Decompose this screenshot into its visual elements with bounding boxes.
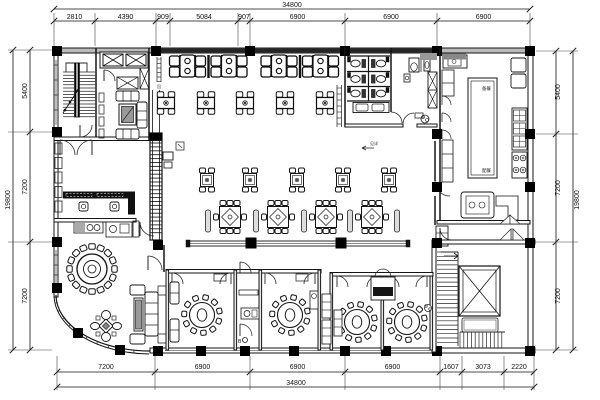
svg-text:2810: 2810 <box>67 14 83 21</box>
svg-text:5084: 5084 <box>196 14 212 21</box>
svg-text:7200: 7200 <box>555 288 562 304</box>
svg-text:7200: 7200 <box>98 364 114 371</box>
svg-text:6900: 6900 <box>290 364 306 371</box>
svg-text:3073: 3073 <box>475 364 491 371</box>
svg-text:备餐: 备餐 <box>482 85 491 92</box>
svg-text:2220: 2220 <box>511 364 527 371</box>
svg-text:见详: 见详 <box>370 140 378 146</box>
svg-text:4390: 4390 <box>118 14 134 21</box>
svg-text:6900: 6900 <box>385 364 401 371</box>
svg-text:1607: 1607 <box>443 364 459 371</box>
svg-text:34800: 34800 <box>282 2 302 9</box>
svg-text:配餐: 配餐 <box>482 167 491 174</box>
svg-text:6900: 6900 <box>383 14 399 21</box>
svg-text:7200: 7200 <box>22 179 29 195</box>
svg-text:回: 回 <box>157 84 161 89</box>
svg-text:909: 909 <box>157 14 169 21</box>
svg-text:19800: 19800 <box>574 190 581 210</box>
svg-text:6900: 6900 <box>290 14 306 21</box>
svg-text:19800: 19800 <box>5 190 12 210</box>
svg-text:5400: 5400 <box>22 83 29 99</box>
svg-text:6900: 6900 <box>476 14 492 21</box>
svg-text:907: 907 <box>238 14 250 21</box>
svg-text:7200: 7200 <box>555 180 562 196</box>
svg-text:6900: 6900 <box>195 364 211 371</box>
svg-text:34800: 34800 <box>286 380 306 387</box>
svg-text:7200: 7200 <box>22 288 29 304</box>
svg-text:5400: 5400 <box>555 84 562 100</box>
